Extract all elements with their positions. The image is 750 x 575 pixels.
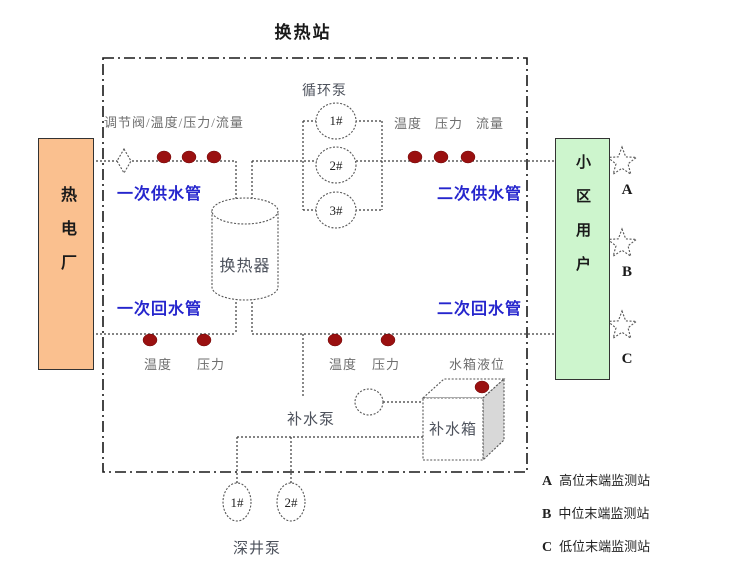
legend-text-b: 中位末端监测站	[558, 503, 649, 522]
legend-key-b: B	[542, 507, 551, 523]
circulation-pump-3-label: 3#	[316, 203, 356, 219]
star-b-icon	[608, 229, 637, 256]
pressure-label: 压力	[197, 354, 225, 373]
pressure-label: 压力	[372, 354, 400, 373]
temperature-label: 温度	[394, 113, 422, 132]
primary-return-pipe-label: 一次回水管	[117, 295, 202, 319]
pressure-label: 压力	[435, 113, 463, 132]
control-valve-icon	[117, 149, 131, 173]
temperature-label: 温度	[144, 354, 172, 373]
legend-text-a: 高位末端监测站	[559, 470, 650, 489]
deep-well-pump-label: 深井泵	[233, 537, 281, 558]
makeup-pump-label: 补水泵	[287, 408, 335, 429]
sensor-dot	[157, 151, 171, 163]
page-title: 换热站	[243, 18, 363, 43]
legend-text-c: 低位末端监测站	[559, 536, 650, 555]
heat-exchanger-top	[212, 198, 278, 224]
tank-level-label: 水箱液位	[449, 354, 505, 373]
sensor-dot	[197, 334, 211, 346]
makeup-pump-icon	[355, 389, 383, 415]
makeup-tank-label: 补水箱	[423, 418, 483, 439]
legend-item-c: C 低位末端监测站	[542, 536, 650, 556]
circulation-pump-label: 循环泵	[302, 80, 347, 100]
sensor-dot	[207, 151, 221, 163]
legend-item-b: B 中位末端监测站	[542, 503, 649, 523]
sensor-dot	[182, 151, 196, 163]
sensor-dot	[475, 381, 489, 393]
circulation-pump-1-label: 1#	[316, 113, 356, 129]
star-c-label: C	[612, 351, 642, 368]
legend-key-a: A	[542, 474, 552, 490]
heat-exchanger-label: 换热器	[212, 252, 278, 276]
star-a-icon	[608, 147, 637, 174]
community-users-box: 小区用户	[555, 138, 610, 380]
star-a-label: A	[612, 182, 642, 199]
thermal-plant-label: 热电厂	[54, 139, 78, 369]
secondary-return-pipe-label: 二次回水管	[437, 295, 522, 319]
sensor-dot	[328, 334, 342, 346]
heat-exchange-station-diagram: 换热站 热电厂 小区用户 调节阀/温度/压力/流量 温度 压力 流量 温度 压力…	[0, 0, 750, 575]
legend-item-a: A 高位末端监测站	[542, 470, 650, 490]
temperature-label: 温度	[329, 354, 357, 373]
sensor-dot	[143, 334, 157, 346]
star-c-icon	[608, 311, 637, 338]
primary-supply-pipe-label: 一次供水管	[117, 180, 202, 204]
community-users-label: 小区用户	[572, 139, 593, 379]
circulation-pump-2-label: 2#	[316, 158, 356, 174]
sensor-dot	[408, 151, 422, 163]
primary-supply-instruments-label: 调节阀/温度/压力/流量	[104, 112, 244, 131]
deep-well-pump-2-label: 2#	[271, 495, 311, 511]
thermal-plant-box: 热电厂	[38, 138, 94, 370]
secondary-supply-pipe-label: 二次供水管	[437, 180, 522, 204]
sensor-dot	[434, 151, 448, 163]
secondary-supply-instruments-label: 温度 压力 流量	[394, 113, 504, 132]
deep-well-pump-1-label: 1#	[217, 495, 257, 511]
flow-label: 流量	[476, 113, 504, 132]
star-b-label: B	[612, 264, 642, 281]
sensor-dot	[461, 151, 475, 163]
sensor-dot	[381, 334, 395, 346]
legend-key-c: C	[542, 540, 552, 556]
